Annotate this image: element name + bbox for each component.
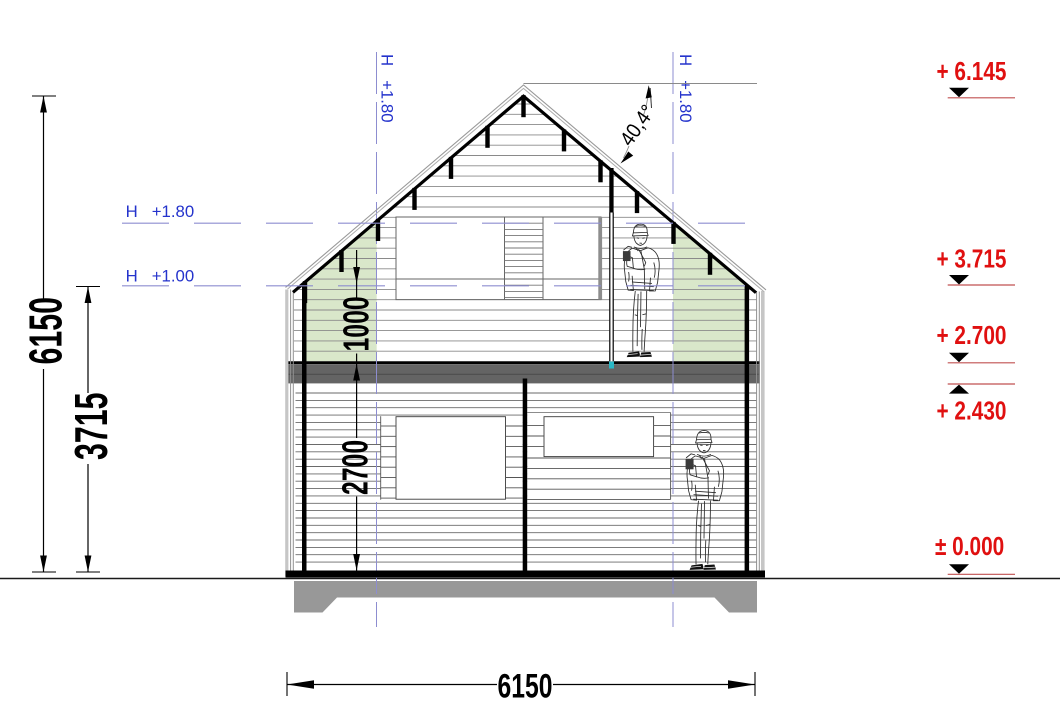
svg-text:± 0.000: ± 0.000 (935, 532, 1004, 561)
svg-text:H +1.80: H +1.80 (126, 202, 195, 221)
svg-text:6150: 6150 (21, 297, 72, 365)
svg-text:2700: 2700 (335, 440, 376, 495)
svg-text:+ 6.145: + 6.145 (937, 57, 1007, 86)
svg-text:+ 2.430: + 2.430 (937, 396, 1007, 425)
svg-text:H +1.80: H +1.80 (378, 54, 397, 123)
svg-text:+ 2.700: + 2.700 (937, 321, 1007, 350)
svg-text:+ 3.715: + 3.715 (937, 245, 1007, 274)
svg-text:1000: 1000 (336, 296, 377, 351)
svg-text:6150: 6150 (498, 668, 553, 706)
svg-text:H +1.80: H +1.80 (676, 54, 695, 123)
svg-text:H +1.00: H +1.00 (126, 267, 195, 286)
svg-text:3715: 3715 (67, 392, 118, 460)
